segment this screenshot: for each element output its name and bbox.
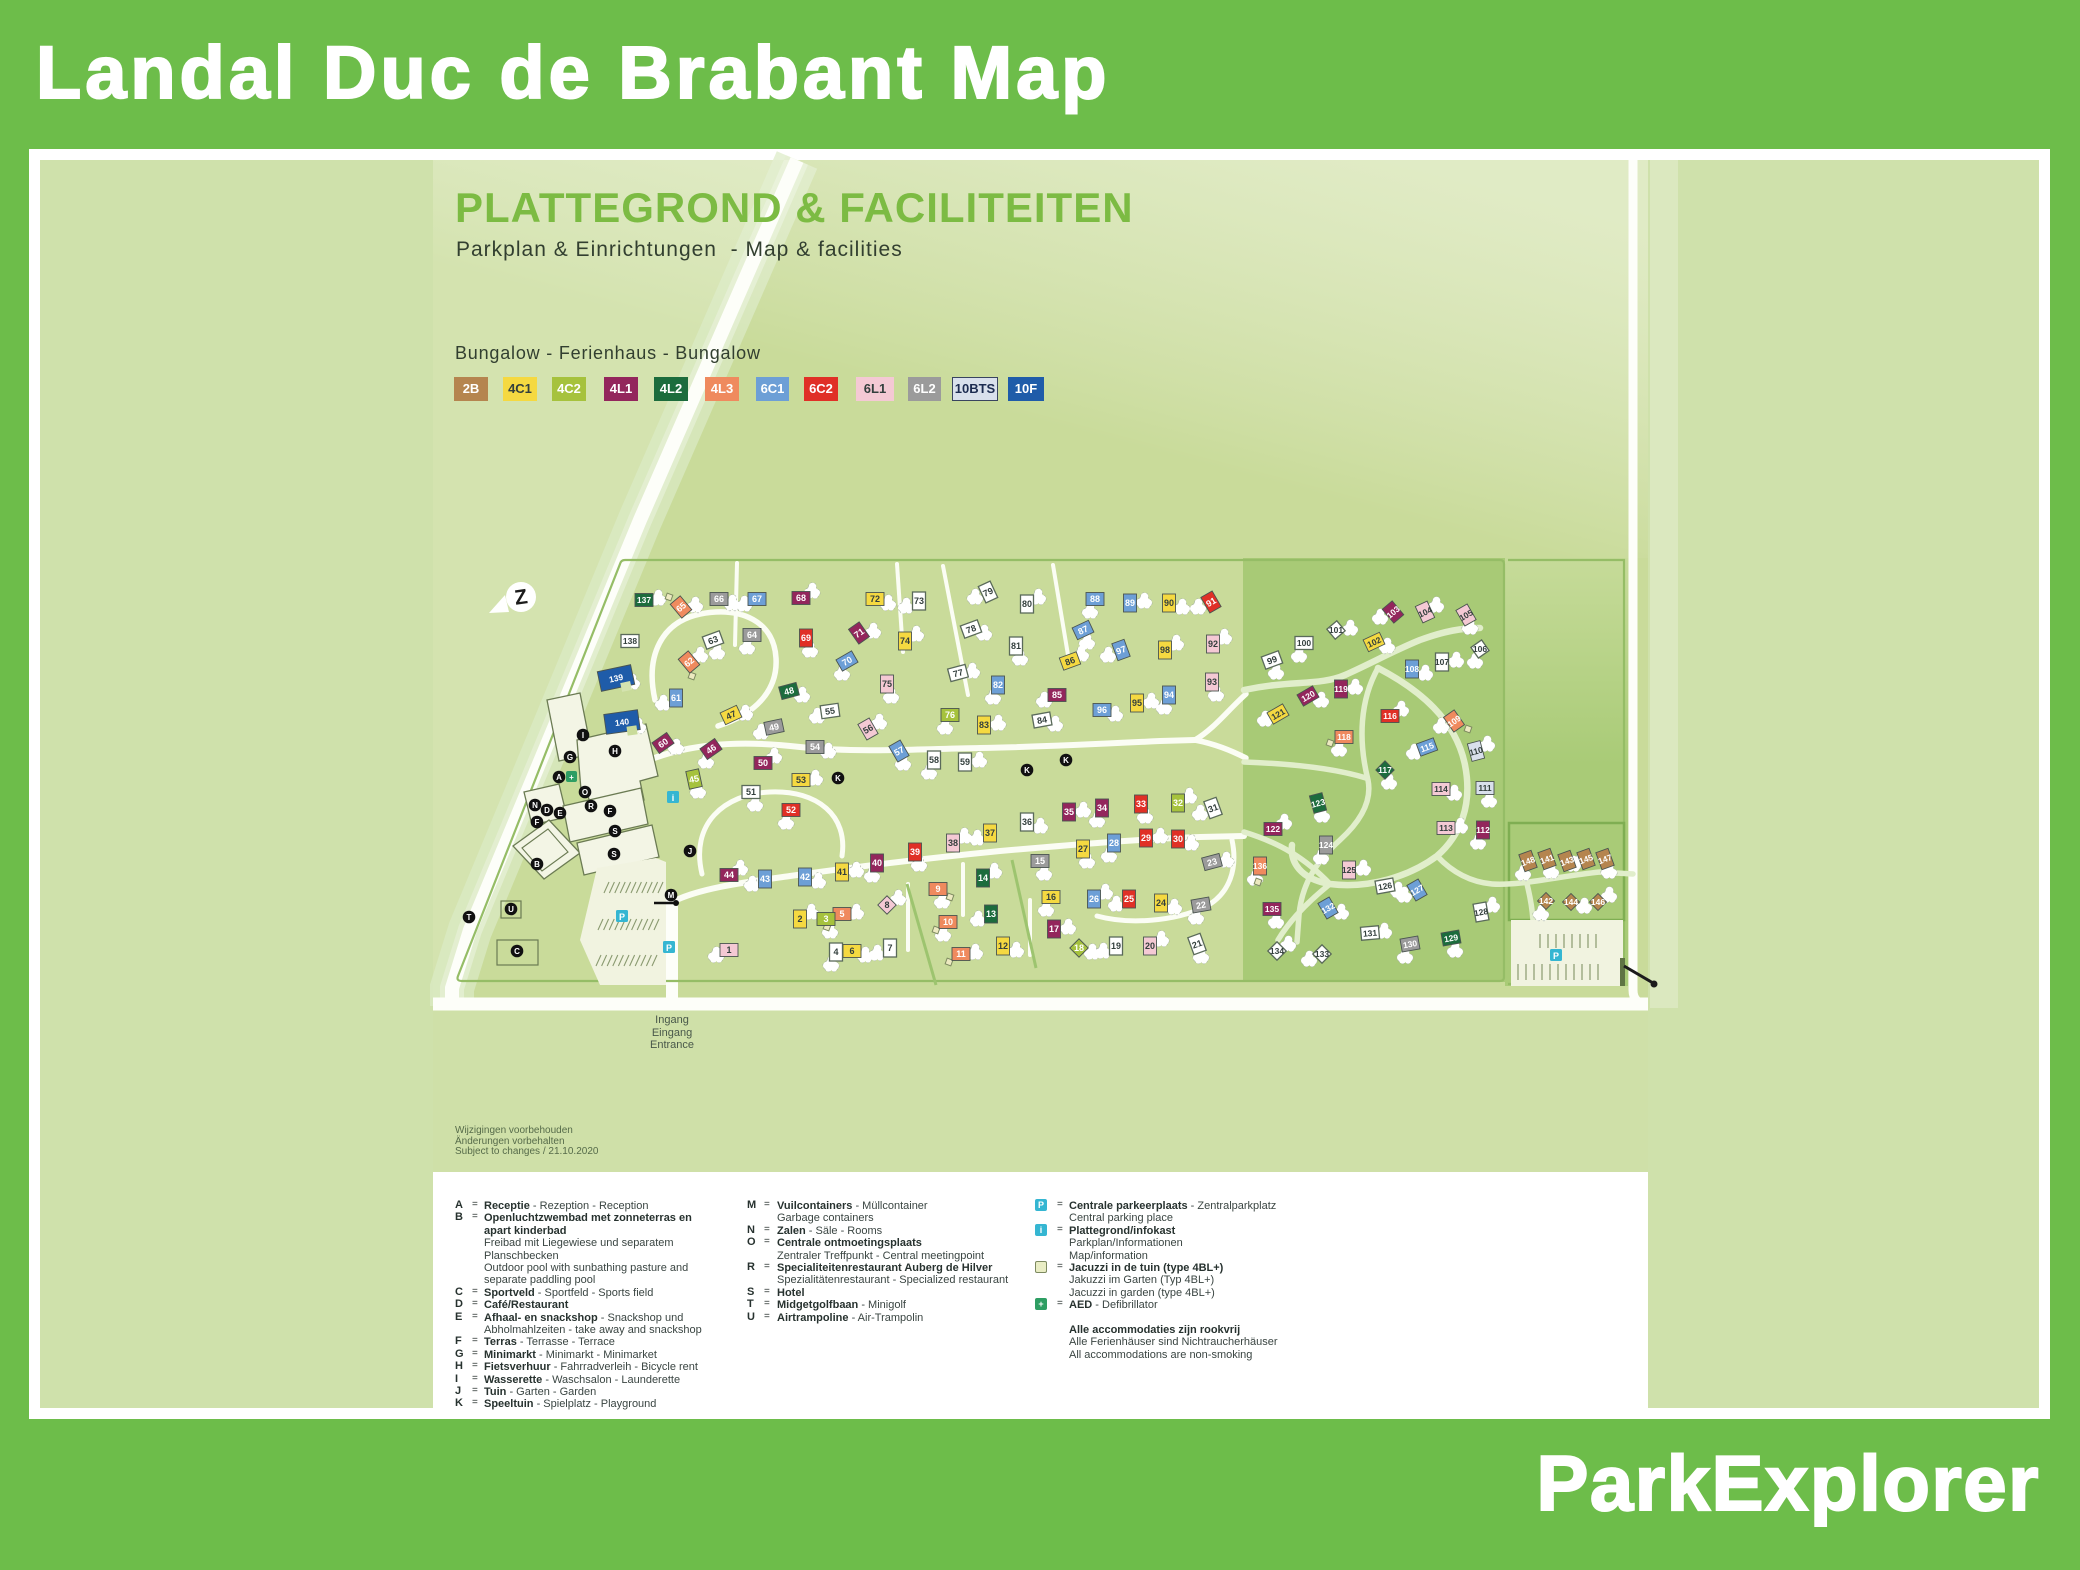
svg-text:134: 134: [1270, 946, 1284, 956]
svg-text:119: 119: [1334, 684, 1348, 694]
svg-text:64: 64: [747, 630, 757, 640]
svg-text:U: U: [508, 905, 514, 914]
svg-text:133: 133: [1315, 949, 1329, 959]
svg-text:K: K: [1063, 756, 1069, 765]
svg-text:30: 30: [1173, 834, 1183, 844]
svg-text:2: 2: [797, 914, 802, 924]
svg-text:51: 51: [746, 787, 756, 797]
svg-text:92: 92: [1208, 639, 1218, 649]
svg-text:17: 17: [1049, 924, 1059, 934]
svg-text:35: 35: [1064, 807, 1074, 817]
svg-text:41: 41: [837, 867, 847, 877]
svg-text:49: 49: [768, 721, 780, 733]
svg-text:J: J: [688, 847, 692, 856]
svg-text:88: 88: [1090, 594, 1100, 604]
svg-text:40: 40: [872, 858, 882, 868]
svg-text:67: 67: [752, 594, 762, 604]
svg-text:+: +: [569, 773, 574, 782]
svg-text:124: 124: [1319, 840, 1333, 850]
svg-text:B: B: [534, 860, 540, 869]
svg-text:33: 33: [1136, 799, 1146, 809]
svg-text:50: 50: [758, 758, 768, 768]
svg-text:42: 42: [800, 872, 810, 882]
svg-text:98: 98: [1160, 645, 1170, 655]
svg-text:E: E: [557, 809, 563, 818]
svg-text:i: i: [672, 793, 675, 803]
svg-text:58: 58: [929, 755, 939, 765]
svg-text:39: 39: [910, 847, 920, 857]
svg-text:34: 34: [1097, 803, 1107, 813]
svg-text:116: 116: [1383, 711, 1397, 721]
svg-text:3: 3: [823, 914, 828, 924]
svg-text:R: R: [588, 802, 594, 811]
svg-text:55: 55: [824, 706, 835, 717]
svg-text:111: 111: [1478, 783, 1492, 793]
svg-text:27: 27: [1078, 844, 1088, 854]
svg-text:112: 112: [1476, 825, 1490, 835]
svg-text:P: P: [619, 912, 625, 922]
svg-text:53: 53: [796, 775, 806, 785]
svg-text:131: 131: [1363, 928, 1378, 939]
svg-text:16: 16: [1046, 892, 1056, 902]
svg-text:K: K: [1024, 766, 1030, 775]
svg-text:S: S: [612, 827, 618, 836]
svg-text:45: 45: [688, 773, 700, 785]
svg-text:89: 89: [1125, 598, 1135, 608]
svg-text:85: 85: [1052, 690, 1062, 700]
svg-text:61: 61: [671, 693, 681, 703]
svg-text:74: 74: [900, 636, 910, 646]
svg-text:9: 9: [935, 884, 940, 894]
svg-text:44: 44: [724, 870, 734, 880]
svg-text:59: 59: [960, 757, 970, 767]
svg-text:G: G: [567, 753, 573, 762]
svg-text:25: 25: [1124, 894, 1134, 904]
svg-text:29: 29: [1141, 833, 1151, 843]
svg-text:15: 15: [1035, 856, 1045, 866]
svg-text:117: 117: [1378, 765, 1392, 775]
svg-text:F: F: [608, 807, 613, 816]
svg-text:75: 75: [882, 679, 892, 689]
svg-text:138: 138: [623, 636, 637, 646]
svg-text:81: 81: [1011, 641, 1021, 651]
svg-text:100: 100: [1297, 638, 1311, 648]
svg-text:80: 80: [1022, 599, 1032, 609]
svg-text:54: 54: [810, 742, 820, 752]
svg-text:6: 6: [849, 946, 854, 956]
svg-text:H: H: [612, 747, 618, 756]
svg-text:32: 32: [1173, 798, 1183, 808]
svg-text:137: 137: [637, 595, 651, 605]
svg-text:122: 122: [1266, 824, 1280, 834]
svg-text:108: 108: [1405, 664, 1419, 674]
svg-text:36: 36: [1022, 817, 1032, 827]
svg-text:14: 14: [978, 873, 988, 883]
svg-text:72: 72: [870, 594, 880, 604]
svg-text:A: A: [556, 773, 562, 782]
svg-text:68: 68: [796, 593, 806, 603]
svg-text:24: 24: [1156, 898, 1166, 908]
svg-text:82: 82: [993, 680, 1003, 690]
svg-text:146: 146: [1591, 897, 1605, 907]
svg-text:5: 5: [839, 909, 844, 919]
svg-text:95: 95: [1132, 698, 1142, 708]
svg-text:142: 142: [1539, 896, 1553, 906]
svg-text:38: 38: [948, 838, 958, 848]
svg-text:84: 84: [1036, 714, 1048, 726]
svg-text:136: 136: [1253, 861, 1267, 871]
svg-text:93: 93: [1207, 677, 1217, 687]
svg-text:107: 107: [1435, 657, 1449, 667]
svg-text:114: 114: [1434, 784, 1448, 794]
svg-text:P: P: [666, 943, 672, 953]
svg-text:22: 22: [1195, 899, 1207, 911]
svg-text:1: 1: [726, 945, 731, 955]
svg-text:125: 125: [1342, 865, 1356, 875]
svg-text:118: 118: [1337, 732, 1351, 742]
svg-text:13: 13: [986, 909, 996, 919]
svg-text:37: 37: [985, 828, 995, 838]
svg-text:11: 11: [956, 949, 966, 959]
svg-text:90: 90: [1164, 598, 1174, 608]
svg-text:96: 96: [1097, 705, 1107, 715]
svg-text:20: 20: [1145, 941, 1155, 951]
svg-text:113: 113: [1439, 823, 1453, 833]
svg-text:19: 19: [1111, 941, 1121, 951]
svg-text:106: 106: [1473, 644, 1487, 654]
svg-text:43: 43: [760, 874, 770, 884]
svg-text:S: S: [611, 850, 617, 859]
svg-text:K: K: [835, 774, 841, 783]
svg-text:12: 12: [998, 941, 1008, 951]
svg-text:8: 8: [884, 900, 889, 910]
svg-text:52: 52: [786, 805, 796, 815]
svg-text:I: I: [582, 731, 584, 740]
svg-text:C: C: [514, 947, 520, 956]
svg-text:F: F: [535, 818, 540, 827]
svg-text:76: 76: [945, 710, 955, 720]
svg-text:O: O: [582, 788, 588, 797]
svg-text:4: 4: [833, 947, 838, 957]
svg-text:73: 73: [914, 596, 924, 606]
svg-text:83: 83: [979, 720, 989, 730]
svg-text:135: 135: [1265, 904, 1279, 914]
svg-text:10: 10: [943, 917, 953, 927]
svg-text:28: 28: [1109, 838, 1119, 848]
svg-text:101: 101: [1329, 625, 1343, 635]
svg-text:7: 7: [887, 943, 892, 953]
svg-text:69: 69: [801, 633, 811, 643]
svg-text:18: 18: [1074, 943, 1084, 953]
svg-text:T: T: [467, 913, 472, 922]
svg-text:66: 66: [714, 594, 724, 604]
svg-text:140: 140: [614, 716, 630, 728]
svg-text:26: 26: [1089, 894, 1099, 904]
svg-text:N: N: [532, 801, 538, 810]
svg-text:M: M: [668, 891, 675, 900]
svg-text:144: 144: [1564, 897, 1578, 907]
svg-text:P: P: [1553, 951, 1559, 961]
svg-text:94: 94: [1164, 690, 1174, 700]
svg-text:D: D: [544, 806, 550, 815]
